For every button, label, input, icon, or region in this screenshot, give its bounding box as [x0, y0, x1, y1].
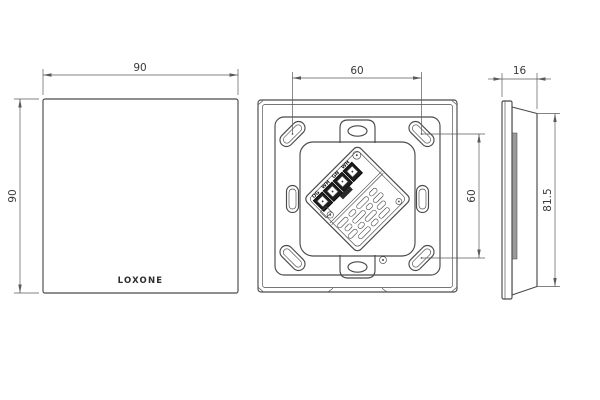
side-height-dimension: 81.5: [537, 114, 560, 287]
rear-hole-spacing-v-label: 60: [466, 189, 478, 202]
front-height-label: 90: [7, 189, 19, 202]
front-height-dimension: 90: [7, 99, 39, 293]
front-width-label: 90: [133, 62, 146, 74]
side-view: 16 81.5: [488, 65, 560, 299]
glass-front-profile: [502, 101, 512, 299]
rear-view: OG WH GN WH: [258, 65, 485, 292]
side-depth-label: 16: [513, 65, 527, 77]
side-depth-dimension: 16: [488, 65, 551, 109]
drawing-canvas: LOXONE 90 90: [0, 0, 600, 400]
technical-drawing: LOXONE 90 90: [0, 0, 600, 400]
rear-hole-spacing-h-label: 60: [350, 65, 363, 77]
frame-edge-shading: [512, 133, 517, 259]
front-width-dimension: 90: [43, 62, 238, 95]
side-height-label: 81.5: [542, 188, 554, 211]
front-face-outline: [43, 99, 238, 293]
brand-logo: LOXONE: [118, 276, 164, 286]
front-view: LOXONE 90 90: [7, 62, 238, 293]
